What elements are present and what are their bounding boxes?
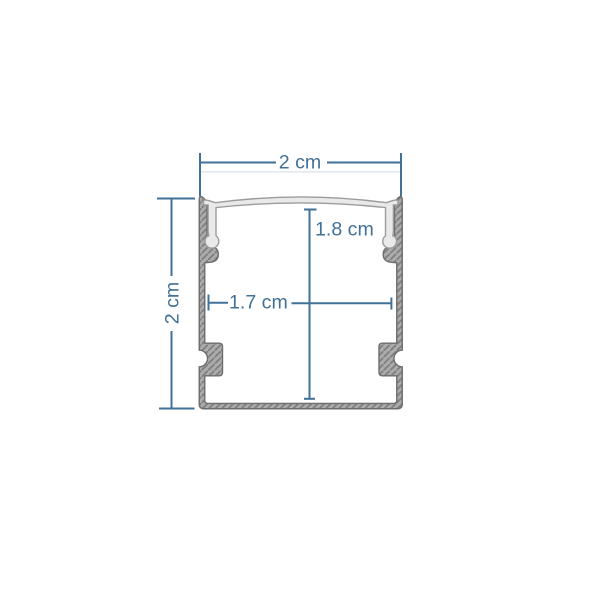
svg-text:1.8 cm: 1.8 cm (315, 219, 374, 241)
svg-text:2 cm: 2 cm (279, 152, 321, 174)
svg-text:1.7 cm: 1.7 cm (229, 292, 288, 314)
svg-text:2 cm: 2 cm (162, 282, 184, 324)
